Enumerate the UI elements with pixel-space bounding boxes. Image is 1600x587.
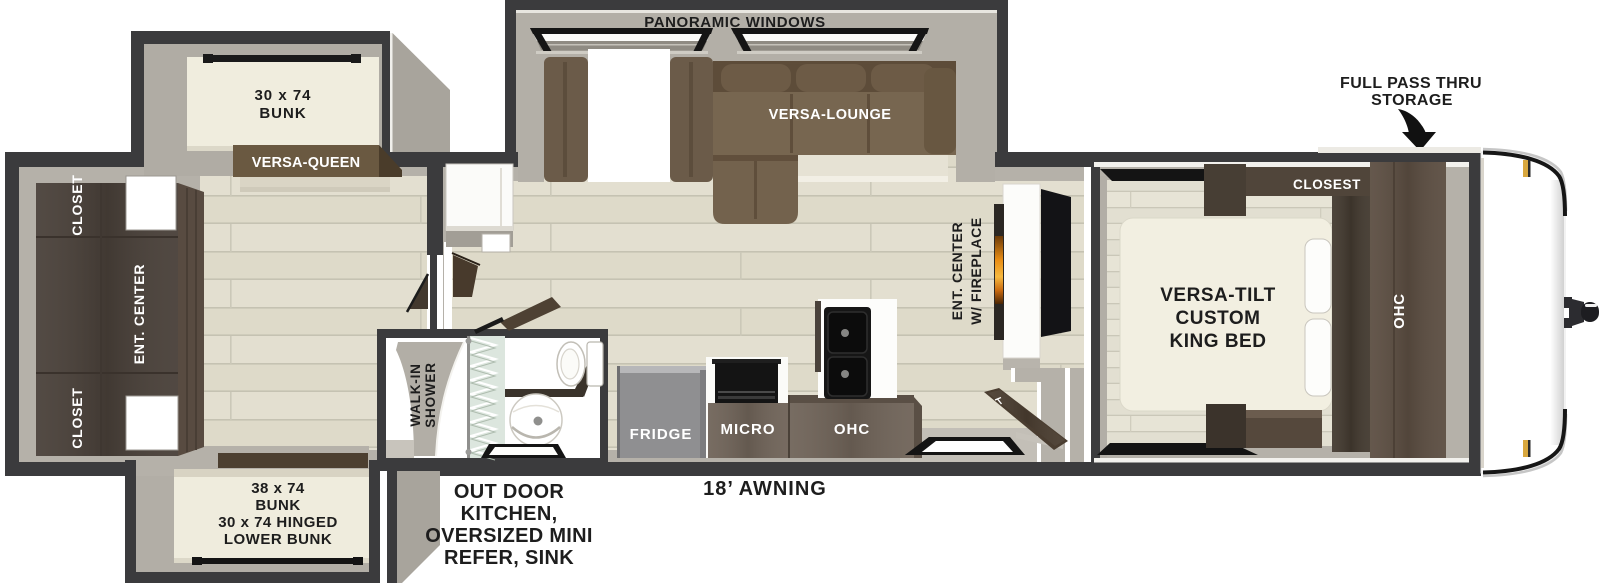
svg-text:OHC: OHC: [834, 421, 870, 438]
svg-text:OUT DOOR: OUT DOOR: [454, 481, 564, 503]
svg-text:CLOSET: CLOSET: [69, 387, 85, 449]
svg-text:30 x 74: 30 x 74: [254, 87, 311, 104]
svg-text:W/ FIREPLACE: W/ FIREPLACE: [968, 217, 984, 325]
svg-text:38 x 74: 38 x 74: [251, 480, 305, 497]
svg-text:VERSA-QUEEN: VERSA-QUEEN: [252, 155, 361, 171]
svg-text:SHOWER: SHOWER: [423, 362, 438, 428]
svg-text:OHC: OHC: [1391, 293, 1408, 329]
svg-text:KING BED: KING BED: [1170, 331, 1267, 352]
svg-text:FULL PASS THRU: FULL PASS THRU: [1340, 75, 1482, 92]
svg-text:18’ AWNING: 18’ AWNING: [703, 478, 827, 500]
svg-text:MICRO: MICRO: [721, 421, 776, 438]
svg-text:KITCHEN,: KITCHEN,: [461, 503, 558, 525]
svg-text:ENT. CENTER: ENT. CENTER: [131, 264, 147, 365]
svg-text:CLOSET: CLOSET: [69, 174, 85, 236]
svg-text:BUNK: BUNK: [259, 105, 306, 122]
svg-text:REFER, SINK: REFER, SINK: [444, 547, 574, 569]
svg-text:VERSA-LOUNGE: VERSA-LOUNGE: [769, 107, 892, 123]
svg-text:BUNK: BUNK: [255, 497, 300, 514]
svg-text:30 x 74 HINGED: 30 x 74 HINGED: [218, 514, 338, 531]
svg-text:ENT. CENTER: ENT. CENTER: [949, 222, 965, 320]
svg-text:WALK-IN: WALK-IN: [408, 363, 423, 426]
svg-text:FRIDGE: FRIDGE: [630, 426, 693, 443]
svg-text:VERSA-TILT: VERSA-TILT: [1160, 285, 1275, 306]
svg-text:CUSTOM: CUSTOM: [1176, 308, 1261, 329]
svg-text:STORAGE: STORAGE: [1371, 92, 1453, 109]
svg-text:CLOSEST: CLOSEST: [1293, 177, 1361, 192]
svg-text:LOWER BUNK: LOWER BUNK: [224, 531, 332, 548]
svg-text:OVERSIZED MINI: OVERSIZED MINI: [425, 525, 593, 547]
